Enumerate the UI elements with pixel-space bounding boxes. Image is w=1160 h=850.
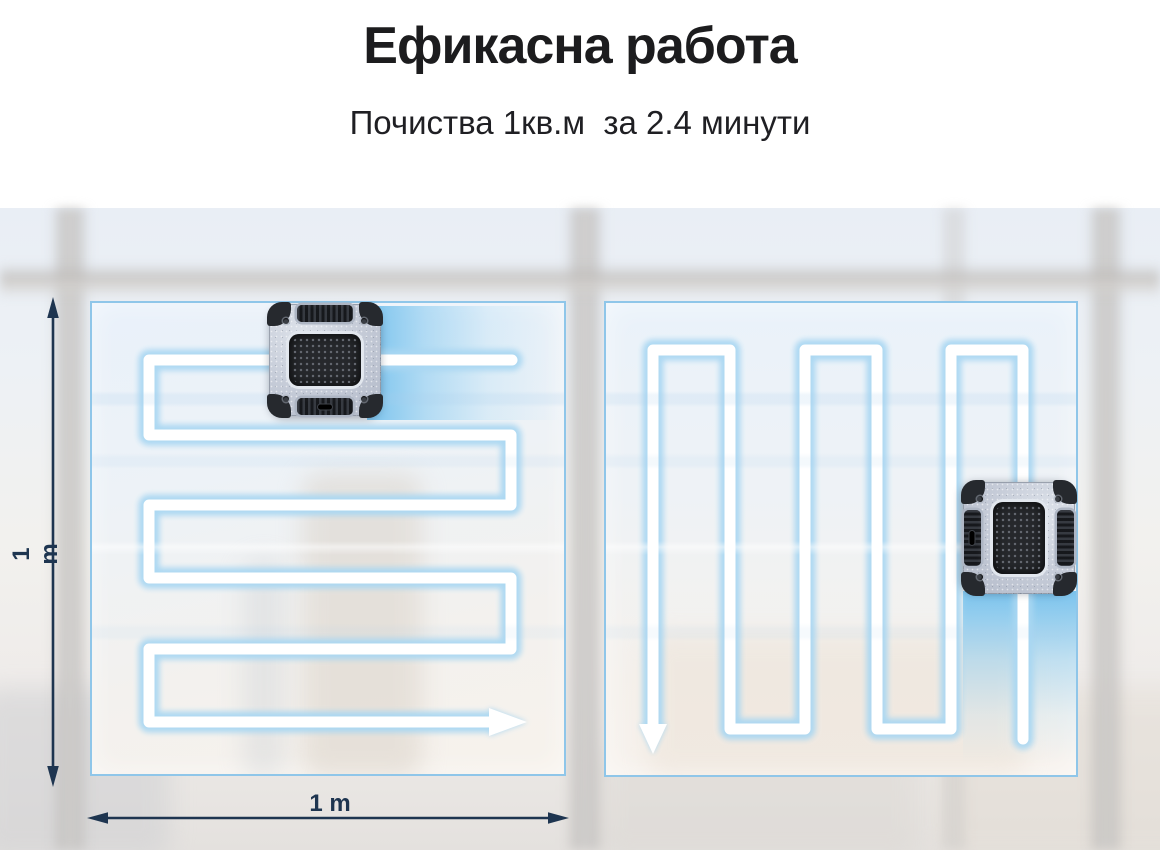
robot-screw <box>1055 574 1061 580</box>
robot-screw <box>283 396 289 402</box>
vertical-dimension-label: 1 m <box>8 534 64 574</box>
page-subtitle: Почиства 1кв.м за 2.4 минути <box>0 104 1160 142</box>
path-end-arrowhead-right <box>489 708 527 736</box>
robot-screw <box>361 318 367 324</box>
robot-suction-pad <box>993 502 1045 574</box>
robot-switch <box>318 404 332 409</box>
robot-tread <box>297 305 353 322</box>
robot-screw <box>361 396 367 402</box>
path-end-arrowhead-down <box>639 724 667 754</box>
window-cleaning-robot-left <box>269 304 381 416</box>
robot-screw <box>1055 496 1061 502</box>
page-title: Ефикасна работа <box>0 16 1160 76</box>
window-cleaning-robot-right <box>963 482 1075 594</box>
robot-tread <box>297 398 353 415</box>
robot-screw <box>977 496 983 502</box>
robot-tread <box>964 510 981 566</box>
robot-screw <box>283 318 289 324</box>
robot-screw <box>977 574 983 580</box>
robot-tread <box>1057 510 1074 566</box>
window-frame-right-mullion <box>1086 208 1126 850</box>
window-frame-crossbar <box>0 264 1160 298</box>
robot-suction-pad <box>289 334 361 386</box>
robot-switch <box>970 531 975 545</box>
page-root: Ефикасна работа Почиства 1кв.м за 2.4 ми… <box>0 0 1160 850</box>
horizontal-dimension-label: 1 m <box>290 790 370 818</box>
window-frame-center-mullion <box>564 208 606 850</box>
